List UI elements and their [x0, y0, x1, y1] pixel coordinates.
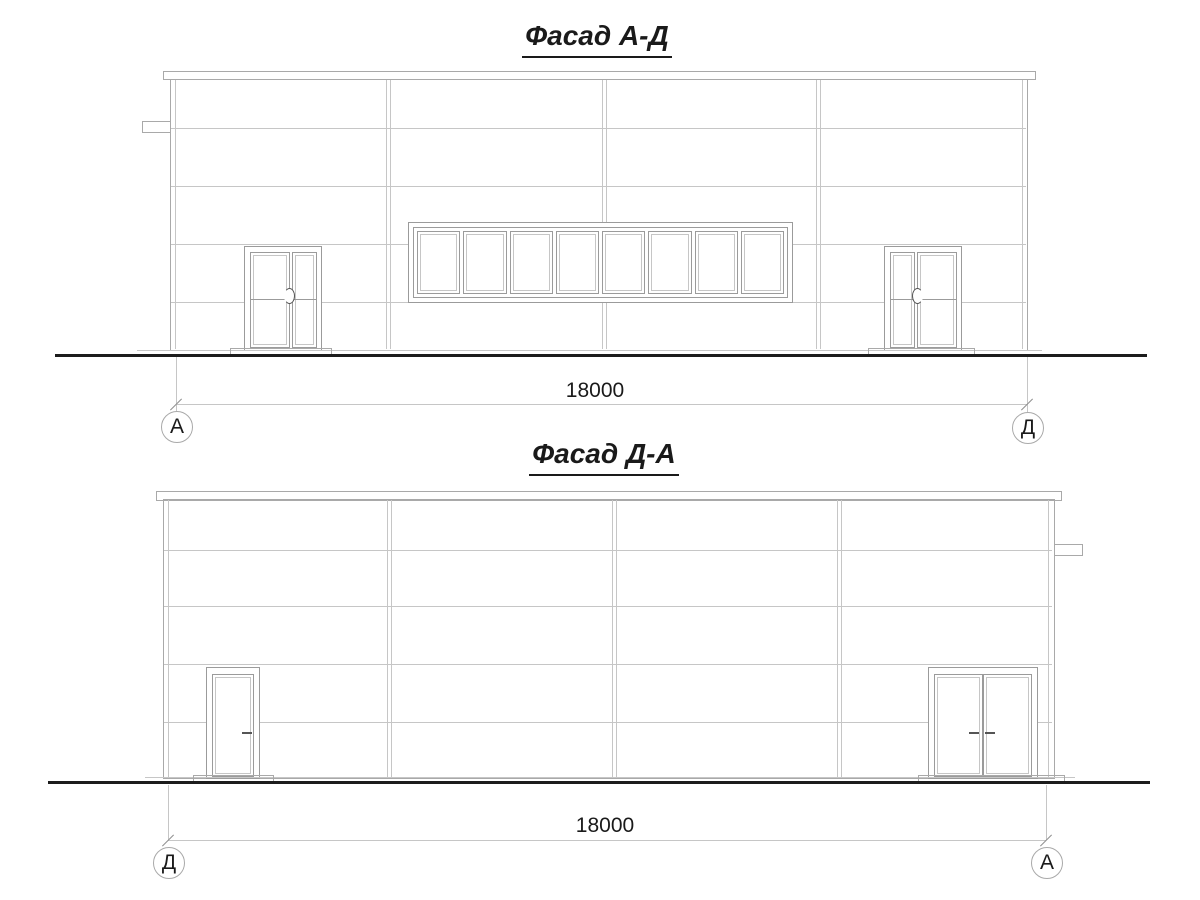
- panel-joint-line: [164, 550, 1052, 551]
- door-handle-icon: [284, 288, 295, 304]
- axis-label: Д: [1021, 416, 1035, 440]
- door-leaf: [934, 674, 983, 777]
- door-leaf: [292, 252, 317, 348]
- axis-label: А: [1040, 851, 1054, 875]
- door-rail: [251, 299, 289, 300]
- door-leaf: [212, 674, 254, 777]
- drawing-canvas: Фасад А-Д: [0, 0, 1200, 900]
- single-door-left: [206, 667, 260, 779]
- facade-bottom-title-text: Фасад Д-А: [529, 438, 678, 476]
- ground-line: [55, 354, 1147, 357]
- dimension-line: [176, 404, 1027, 405]
- axis-marker-left: А: [161, 411, 193, 443]
- dimension-label: 18000: [495, 379, 695, 403]
- panel-joint-line: [164, 606, 1052, 607]
- column-line: [816, 80, 821, 349]
- double-door-right-bottom: [928, 667, 1038, 779]
- panel-joint-line: [164, 722, 1052, 723]
- ground-line: [48, 781, 1150, 784]
- window-band: [408, 222, 793, 303]
- wall-edge-line: [175, 80, 176, 349]
- window-pane: [463, 231, 506, 294]
- door-rail: [293, 299, 316, 300]
- column-line: [387, 500, 392, 777]
- door-handle-icon: [242, 732, 252, 734]
- wall-edge-line: [1048, 500, 1049, 777]
- door-handle-icon: [985, 732, 995, 734]
- window-pane: [695, 231, 738, 294]
- axis-marker-right: А: [1031, 847, 1063, 879]
- window-pane: [417, 231, 460, 294]
- door-handle-icon: [912, 288, 923, 304]
- door-leaf: [917, 252, 957, 348]
- facade-top-title: Фасад А-Д: [427, 20, 767, 58]
- dimension-line: [168, 840, 1046, 841]
- window-band-frame: [413, 227, 788, 298]
- window-pane: [602, 231, 645, 294]
- door-leaf: [983, 674, 1032, 777]
- door-rail: [891, 299, 914, 300]
- facade-bottom-title: Фасад Д-А: [434, 438, 774, 476]
- door-rail: [918, 299, 956, 300]
- dimension-label: 18000: [505, 814, 705, 838]
- gutter-outlet: [142, 121, 171, 133]
- window-pane: [510, 231, 553, 294]
- wall-edge-line: [1022, 80, 1023, 349]
- window-pane: [741, 231, 784, 294]
- window-pane: [648, 231, 691, 294]
- column-line: [837, 500, 842, 777]
- wall-edge-line: [168, 500, 169, 777]
- column-line: [386, 80, 391, 349]
- building-outline-bottom: [163, 499, 1055, 779]
- column-line: [602, 80, 607, 349]
- window-pane: [556, 231, 599, 294]
- axis-marker-right: Д: [1012, 412, 1044, 444]
- axis-label: А: [170, 415, 184, 439]
- double-door-left: [244, 246, 322, 351]
- axis-marker-left: Д: [153, 847, 185, 879]
- gutter-outlet: [1054, 544, 1083, 556]
- double-door-right: [884, 246, 962, 351]
- door-handle-icon: [969, 732, 979, 734]
- column-line: [612, 500, 617, 777]
- facade-top-title-text: Фасад А-Д: [522, 20, 671, 58]
- axis-label: Д: [162, 851, 176, 875]
- panel-joint-line: [171, 186, 1026, 187]
- door-leaf: [890, 252, 915, 348]
- extension-line: [168, 785, 169, 840]
- extension-line: [1046, 785, 1047, 840]
- panel-joint-line: [171, 128, 1026, 129]
- panel-joint-line: [164, 664, 1052, 665]
